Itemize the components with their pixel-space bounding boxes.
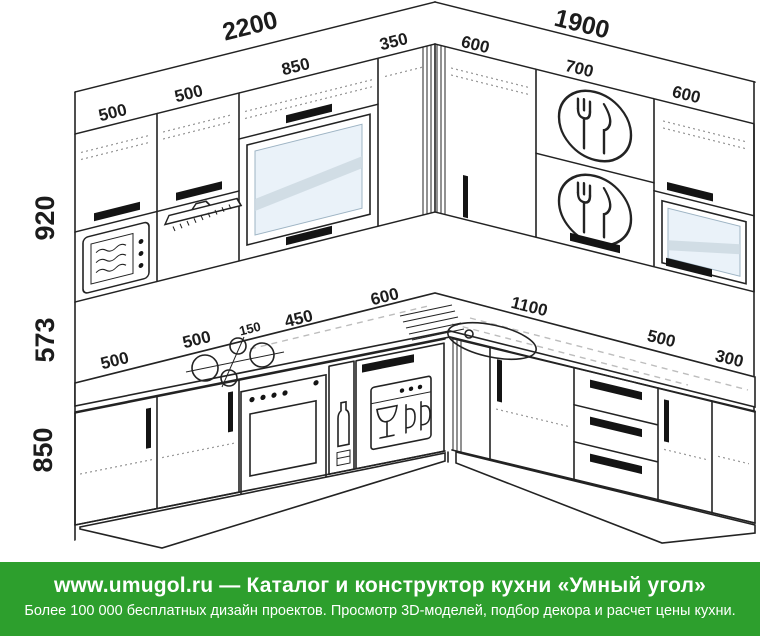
cabinet-handle: [146, 408, 151, 449]
cabinet-handle: [228, 391, 233, 432]
dim-right-total: 1900: [552, 4, 613, 45]
dim-upper-right-1: 600: [459, 32, 491, 57]
cabinet-handle: [667, 182, 713, 201]
dim-base-left-2: 500: [181, 327, 213, 352]
cabinet-handle: [176, 181, 222, 200]
cabinet-handle: [664, 399, 669, 442]
cabinet-handle: [94, 202, 140, 221]
dim-height-upper: 920: [30, 195, 60, 240]
dim-base-right-2: 500: [645, 326, 677, 351]
dim-base-left-3: 150: [238, 319, 263, 339]
kitchen-perspective-drawing: 2200 1900 500 500 850 350 600 700 600 92…: [0, 0, 760, 562]
bottle-carousel-icon: [329, 361, 354, 474]
dim-left-total: 2200: [220, 6, 281, 47]
cabinet-handle: [286, 104, 332, 123]
kitchen-diagram-page: 2200 1900 500 500 850 350 600 700 600 92…: [0, 0, 760, 636]
glass-door: [247, 114, 370, 245]
kitchen-diagram-svg: 2200 1900 500 500 850 350 600 700 600 92…: [0, 0, 760, 562]
site-tagline: Более 100 000 бесплатных дизайн проектов…: [0, 603, 760, 619]
footer-banner: www.umugol.ru — Каталог и конструктор ку…: [0, 562, 760, 636]
microwave-icon: [83, 221, 149, 293]
dim-height-gap: 573: [30, 317, 60, 362]
cutlery-plate-icon: [559, 83, 631, 169]
corner-post-lines: [423, 45, 431, 215]
dishwasher-icon: [356, 343, 444, 469]
drawer-unit: [574, 368, 658, 500]
corner-post-lines: [437, 45, 445, 215]
dim-upper-left-4: 350: [378, 29, 410, 54]
site-title: www.umugol.ru — Каталог и конструктор ку…: [0, 574, 760, 598]
cabinet-handle: [497, 359, 502, 402]
dim-height-base: 850: [28, 427, 58, 472]
corner-post-lines: [453, 339, 461, 453]
cabinet-handle: [463, 175, 468, 218]
